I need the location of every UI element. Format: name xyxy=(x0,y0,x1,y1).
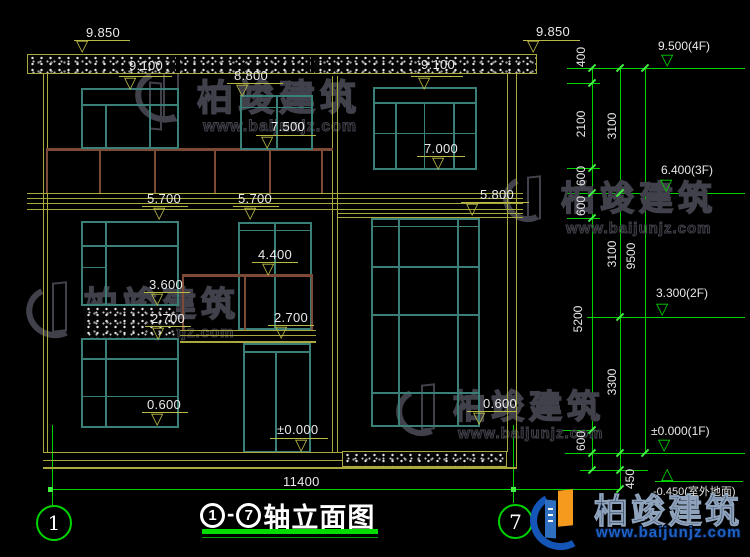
level-label: 7.500 xyxy=(271,119,305,134)
logo-window-dot xyxy=(548,514,553,516)
level-triangle-icon: △ xyxy=(661,468,673,482)
dim-value: 600 xyxy=(574,176,588,236)
dim-value: 2100 xyxy=(574,94,588,154)
level-label: 7.000 xyxy=(424,141,458,156)
level-label: 4.400 xyxy=(258,247,292,262)
title-dash: - xyxy=(227,501,234,527)
level-label: 0.600 xyxy=(483,396,517,411)
axis-bubble-1: 1 xyxy=(36,505,72,541)
level-triangle-icon: ▽ xyxy=(124,77,136,91)
level-label: ±0.000 xyxy=(277,422,318,437)
window-mullion xyxy=(105,340,107,426)
level-triangle-icon: ▽ xyxy=(432,157,444,171)
dim-value: 600 xyxy=(574,411,588,471)
level-triangle-icon: ▽ xyxy=(527,40,539,54)
level-triangle-icon: ▽ xyxy=(418,77,430,91)
balcony-railing-3f xyxy=(46,148,333,193)
dim-line-vertical xyxy=(645,68,646,453)
title-axis-start: 1 xyxy=(200,503,225,528)
level-label: 9.850 xyxy=(536,24,570,39)
window-mullion xyxy=(105,104,107,147)
dim-value: 3100 xyxy=(605,96,619,156)
level-label: 5.700 xyxy=(147,191,181,206)
dim-value: 400 xyxy=(574,27,588,87)
window-rail xyxy=(375,133,475,134)
window-mullion xyxy=(395,102,397,168)
axis-line xyxy=(52,425,53,505)
floor-slab-line xyxy=(27,209,523,210)
railing-top-rail xyxy=(182,274,313,277)
logo-building-icon xyxy=(545,500,556,539)
level-triangle-icon: ▽ xyxy=(295,439,307,453)
level-triangle-icon: ▽ xyxy=(151,293,163,307)
dim-value: 3300 xyxy=(605,352,619,412)
window-transom xyxy=(373,226,478,227)
window-rail xyxy=(373,314,478,316)
level-label: 3.600 xyxy=(149,277,183,292)
window-mullion xyxy=(105,223,107,304)
ground-line xyxy=(43,467,342,469)
level-triangle-icon: ▽ xyxy=(262,263,274,277)
window-mullion xyxy=(424,102,425,168)
watermark-building-icon xyxy=(52,281,67,333)
railing-post xyxy=(269,148,271,193)
window-transom xyxy=(83,245,177,247)
window-transom xyxy=(83,104,177,106)
window-transom xyxy=(375,102,475,104)
title-underline xyxy=(202,529,378,534)
level-label: 9.100 xyxy=(421,57,455,72)
window-3f-right xyxy=(373,87,477,170)
level-triangle-icon: ▽ xyxy=(76,40,88,54)
axis-bubble-7: 7 xyxy=(498,504,533,539)
window-3f-left xyxy=(81,88,179,149)
door-transom xyxy=(245,351,309,353)
dim-value: 3100 xyxy=(605,224,619,284)
plinth-line xyxy=(43,460,342,461)
level-triangle-icon: ▽ xyxy=(236,84,248,98)
floor-level-label: 9.500(4F) xyxy=(658,39,710,53)
dim-value: 9500 xyxy=(624,226,638,286)
level-triangle-icon: ▽ xyxy=(656,303,668,317)
level-label: 2.700 xyxy=(151,311,185,326)
level-label: 2.700 xyxy=(274,310,308,325)
level-label: 9.100 xyxy=(129,58,163,73)
wall-edge-left xyxy=(47,74,48,453)
wall-edge-left xyxy=(43,74,44,453)
window-2f-left xyxy=(81,221,179,306)
railing-post xyxy=(321,148,323,193)
floor-level-label: 3.300(2F) xyxy=(656,286,708,300)
logo-window-dot xyxy=(548,520,553,522)
floor-slab-line xyxy=(27,193,523,194)
wall-corner xyxy=(332,76,333,453)
ground-line xyxy=(342,467,517,469)
railing-post xyxy=(154,148,156,193)
window-mullion xyxy=(453,102,455,168)
level-triangle-icon: ▽ xyxy=(473,412,485,426)
window-1f-left xyxy=(81,338,179,428)
floor-level-label: ±0.000(1F) xyxy=(651,424,710,438)
level-line xyxy=(252,262,298,263)
logo-building-icon xyxy=(558,489,573,527)
railing-post xyxy=(46,148,48,193)
level-triangle-icon: ▽ xyxy=(152,327,164,341)
window-mullion xyxy=(149,104,151,147)
dim-endpoint xyxy=(48,487,53,492)
roof-band-joint xyxy=(176,55,180,73)
plinth-masonry-band xyxy=(342,451,507,467)
axis-number: 1 xyxy=(48,511,61,535)
balcony-slab-line xyxy=(180,335,316,336)
level-triangle-icon: ▽ xyxy=(151,413,163,427)
window-transom xyxy=(83,358,177,360)
level-label: 5.800 xyxy=(480,187,514,202)
watermark-building-icon xyxy=(527,175,541,220)
level-triangle-icon: ▽ xyxy=(660,179,672,193)
window-rail xyxy=(373,392,478,394)
railing-post xyxy=(311,274,313,330)
roof-band-joint xyxy=(311,55,314,73)
level-triangle-icon: ▽ xyxy=(153,207,165,221)
level-triangle-icon: ▽ xyxy=(658,439,670,453)
axis-number: 7 xyxy=(509,510,522,534)
level-triangle-icon: ▽ xyxy=(275,326,287,340)
level-label: 0.600 xyxy=(147,397,181,412)
title-underline-thin xyxy=(202,537,378,538)
level-triangle-icon: ▽ xyxy=(661,54,673,68)
window-rail xyxy=(83,267,107,268)
logo-url-text: www.baijunjz.com xyxy=(596,524,741,541)
dim-value: 5200 xyxy=(571,289,585,349)
level-triangle-icon: ▽ xyxy=(261,136,273,150)
level-label: 9.850 xyxy=(86,25,120,40)
window-mullion xyxy=(457,220,459,425)
dim-line-total-width xyxy=(50,489,620,490)
wall-corner xyxy=(337,76,338,453)
level-label: 5.700 xyxy=(238,191,272,206)
dim-value-total: 11400 xyxy=(283,474,320,489)
elevation-drawing-canvas: 柏竣建筑 www.baijunjz.com 柏竣建筑 www.baijunjz.… xyxy=(0,0,750,557)
railing-post xyxy=(214,148,216,193)
floor-level-label: 6.400(3F) xyxy=(661,163,713,177)
level-label: 8.800 xyxy=(234,68,268,83)
dim-endpoint xyxy=(511,487,516,492)
level-triangle-icon: ▽ xyxy=(244,207,256,221)
title-axis-end: 7 xyxy=(236,503,261,528)
balcony-slab-line xyxy=(180,330,316,331)
window-rail xyxy=(373,266,478,268)
window-mullion xyxy=(398,220,400,425)
floor-slab-line xyxy=(27,203,523,204)
level-line-4f xyxy=(567,68,745,69)
level-triangle-icon: ▽ xyxy=(466,203,478,217)
floor-slab-line xyxy=(337,213,523,214)
window-stairwell-right xyxy=(371,218,480,427)
logo-window-dot xyxy=(548,508,553,510)
railing-post xyxy=(244,274,246,330)
roof-slab-band xyxy=(27,54,537,74)
floor-slab-line xyxy=(27,198,523,199)
railing-post xyxy=(99,148,101,193)
level-line xyxy=(142,412,188,413)
